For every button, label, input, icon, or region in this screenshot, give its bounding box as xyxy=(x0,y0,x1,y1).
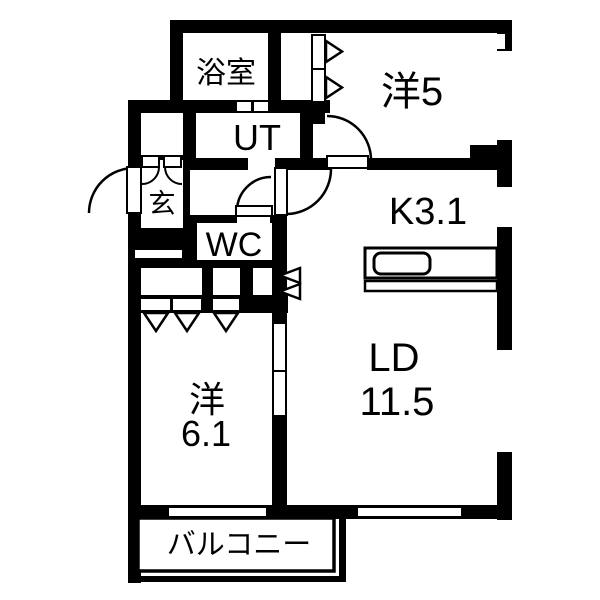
wall-segment xyxy=(312,102,325,124)
door-leaf xyxy=(236,206,272,216)
label-living-dining-size: 11.5 xyxy=(360,380,435,424)
bathroom-sliding-door-icon xyxy=(236,101,269,112)
balcony-outer-edge xyxy=(339,518,346,582)
wall-segment xyxy=(183,170,190,228)
wall-segment xyxy=(183,158,248,170)
window-room6-balcony xyxy=(168,507,267,517)
wall-segment xyxy=(272,415,287,507)
utility-door-opening xyxy=(248,158,275,170)
door-leaf xyxy=(253,101,269,112)
wall-segment xyxy=(272,215,287,323)
kitchen-counter-icon xyxy=(365,248,497,291)
door-leaf xyxy=(275,168,287,215)
door-leaf xyxy=(312,35,325,69)
wall-segment xyxy=(128,113,141,168)
room6-closet-door-icon xyxy=(140,298,240,331)
label-entrance: 玄 xyxy=(149,189,176,219)
window-ld-balcony xyxy=(357,507,462,517)
wall-segment xyxy=(497,227,512,350)
wall-segment xyxy=(202,268,213,296)
balcony-outer-edge xyxy=(128,576,346,582)
entrance-shelf-slot xyxy=(135,250,182,258)
ld-room6-sliding-door-icon xyxy=(273,323,286,416)
wall-segment xyxy=(170,20,512,33)
wall-segment xyxy=(170,20,183,113)
door-leaf xyxy=(327,156,368,168)
door-leaf xyxy=(140,298,171,311)
door-leaf xyxy=(212,298,240,311)
door-leaf xyxy=(273,323,286,371)
label-living-dining: LD xyxy=(368,336,419,380)
door-leaf xyxy=(164,156,181,167)
wall-segment xyxy=(183,113,196,158)
label-kitchen: K3.1 xyxy=(389,191,467,233)
counter-front xyxy=(365,281,497,291)
wall-segment xyxy=(141,228,195,242)
wall-segment xyxy=(240,268,253,296)
label-western-room-5: 洋5 xyxy=(381,70,443,114)
wall-segment xyxy=(470,145,497,158)
door-leaf xyxy=(273,371,286,416)
wall-corner-notch xyxy=(497,34,505,49)
door-leaf xyxy=(172,298,202,311)
wall-segment xyxy=(367,158,497,170)
label-bathroom: 浴室 xyxy=(196,57,256,90)
label-utility: UT xyxy=(233,117,281,158)
door-leaf xyxy=(236,101,252,112)
wall-segment xyxy=(128,100,185,113)
wall-segment xyxy=(497,140,512,187)
floorplan-canvas: 浴室 UT 玄 WC 洋5 K3.1 LD 11.5 洋 6.1 バルコニー xyxy=(0,0,600,600)
door-leaf xyxy=(142,156,159,167)
label-balcony: バルコニー xyxy=(167,529,311,561)
sink-icon xyxy=(374,253,430,274)
door-leaf xyxy=(312,69,325,102)
wall-segment xyxy=(268,33,281,100)
label-western-room-6-size: 6.1 xyxy=(181,413,231,454)
floorplan-drawing: 浴室 UT 玄 WC 洋5 K3.1 LD 11.5 洋 6.1 バルコニー xyxy=(0,0,600,600)
label-toilet: WC xyxy=(206,226,263,264)
door-leaf xyxy=(127,167,141,213)
